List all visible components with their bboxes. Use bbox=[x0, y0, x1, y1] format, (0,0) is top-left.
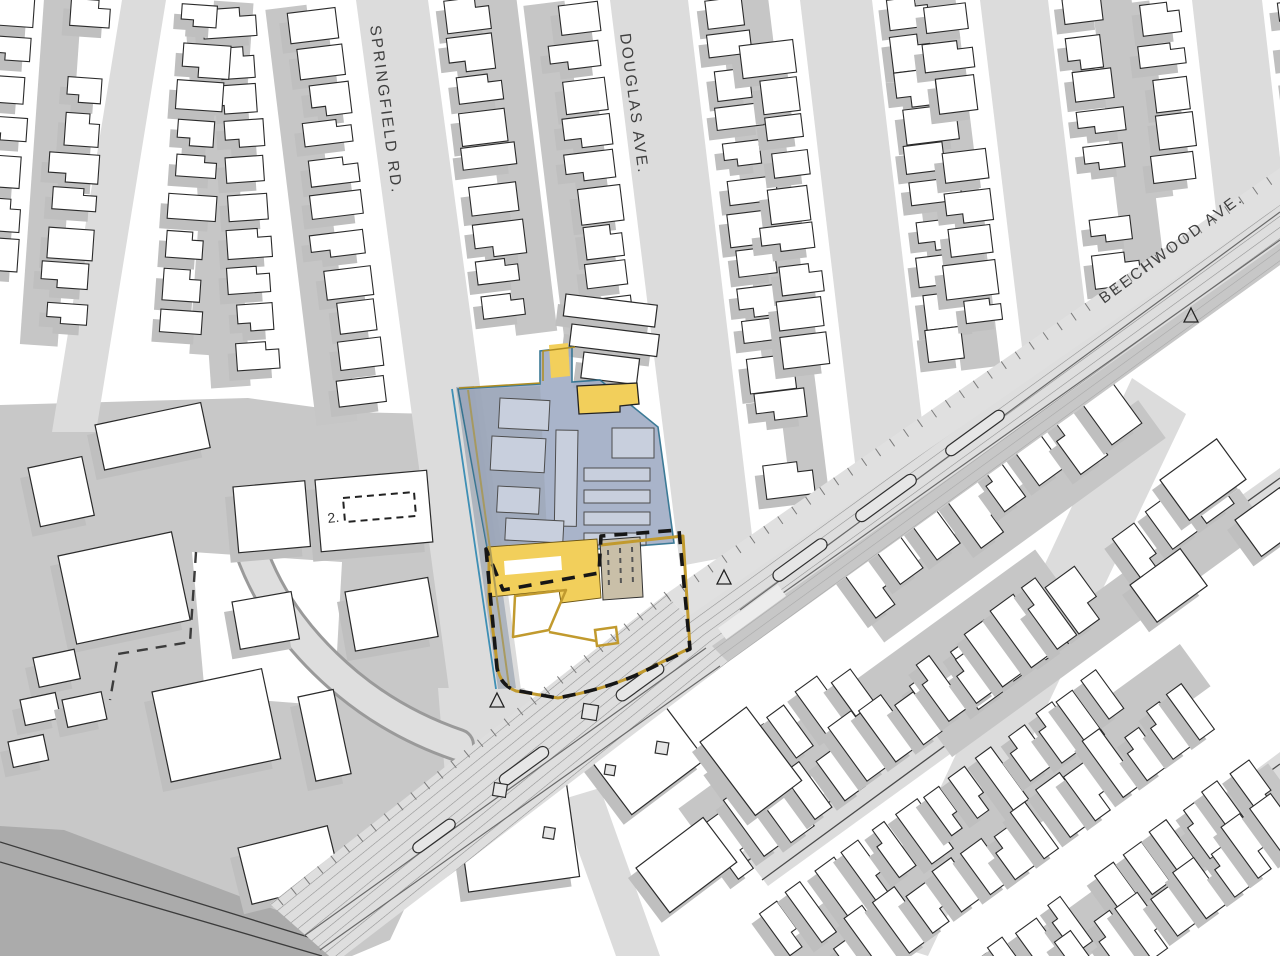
building bbox=[224, 481, 311, 563]
building bbox=[18, 457, 96, 537]
site-plan-map: SPRINGFIELD RD. DOUGLAS AVE. BEECHWOOD A… bbox=[0, 0, 1280, 956]
building bbox=[223, 592, 301, 660]
building-2-label: 2. bbox=[327, 509, 340, 526]
site-plan-svg: SPRINGFIELD RD. DOUGLAS AVE. BEECHWOOD A… bbox=[0, 0, 1280, 956]
